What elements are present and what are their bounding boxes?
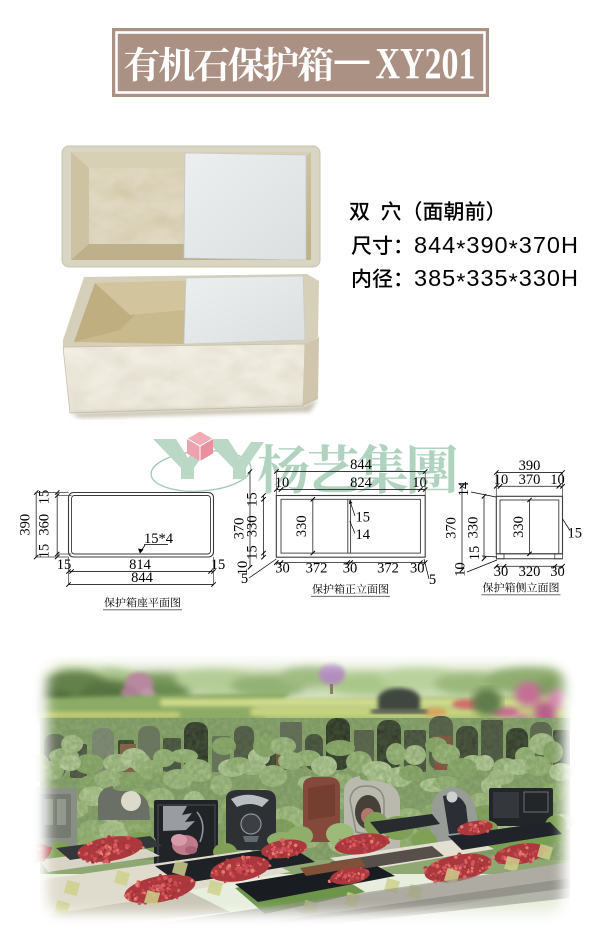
svg-text:844: 844	[131, 570, 154, 586]
svg-text:XY201: XY201	[376, 39, 476, 88]
svg-text:15: 15	[356, 509, 371, 525]
svg-text:14: 14	[356, 527, 371, 543]
svg-text:844*390*370H: 844*390*370H	[414, 232, 579, 262]
svg-text:15: 15	[467, 546, 483, 561]
svg-text:15: 15	[245, 545, 261, 560]
svg-text:5: 5	[241, 571, 248, 587]
svg-text:330: 330	[511, 516, 527, 538]
svg-text:30: 30	[410, 561, 425, 577]
svg-text:30: 30	[550, 564, 565, 580]
svg-text:15: 15	[245, 492, 261, 507]
svg-text:15: 15	[57, 557, 72, 573]
svg-text:372: 372	[377, 561, 399, 577]
svg-text:15: 15	[37, 544, 53, 559]
svg-text:824: 824	[350, 475, 373, 491]
svg-text:320: 320	[519, 564, 541, 580]
svg-text:30: 30	[343, 561, 358, 577]
svg-text:330: 330	[294, 515, 310, 537]
svg-text:330: 330	[466, 517, 482, 539]
svg-text:10: 10	[412, 475, 427, 491]
svg-text:14: 14	[456, 481, 472, 496]
svg-text:390: 390	[18, 514, 34, 536]
svg-text:10: 10	[494, 472, 509, 488]
svg-text:370: 370	[444, 517, 460, 539]
svg-text:15: 15	[211, 557, 226, 573]
svg-text:372: 372	[306, 561, 328, 577]
svg-text:370: 370	[519, 472, 541, 488]
svg-text:385*335*330H: 385*335*330H	[414, 265, 579, 295]
svg-text:5: 5	[429, 572, 436, 588]
svg-text:844: 844	[350, 457, 373, 473]
svg-text:30: 30	[275, 561, 290, 577]
svg-text:330: 330	[245, 515, 261, 537]
svg-text:10: 10	[275, 475, 290, 491]
svg-text:360: 360	[37, 514, 53, 536]
svg-text:15: 15	[568, 526, 583, 542]
svg-text:15: 15	[37, 490, 53, 505]
svg-text:10: 10	[453, 562, 469, 577]
svg-text:30: 30	[494, 564, 509, 580]
